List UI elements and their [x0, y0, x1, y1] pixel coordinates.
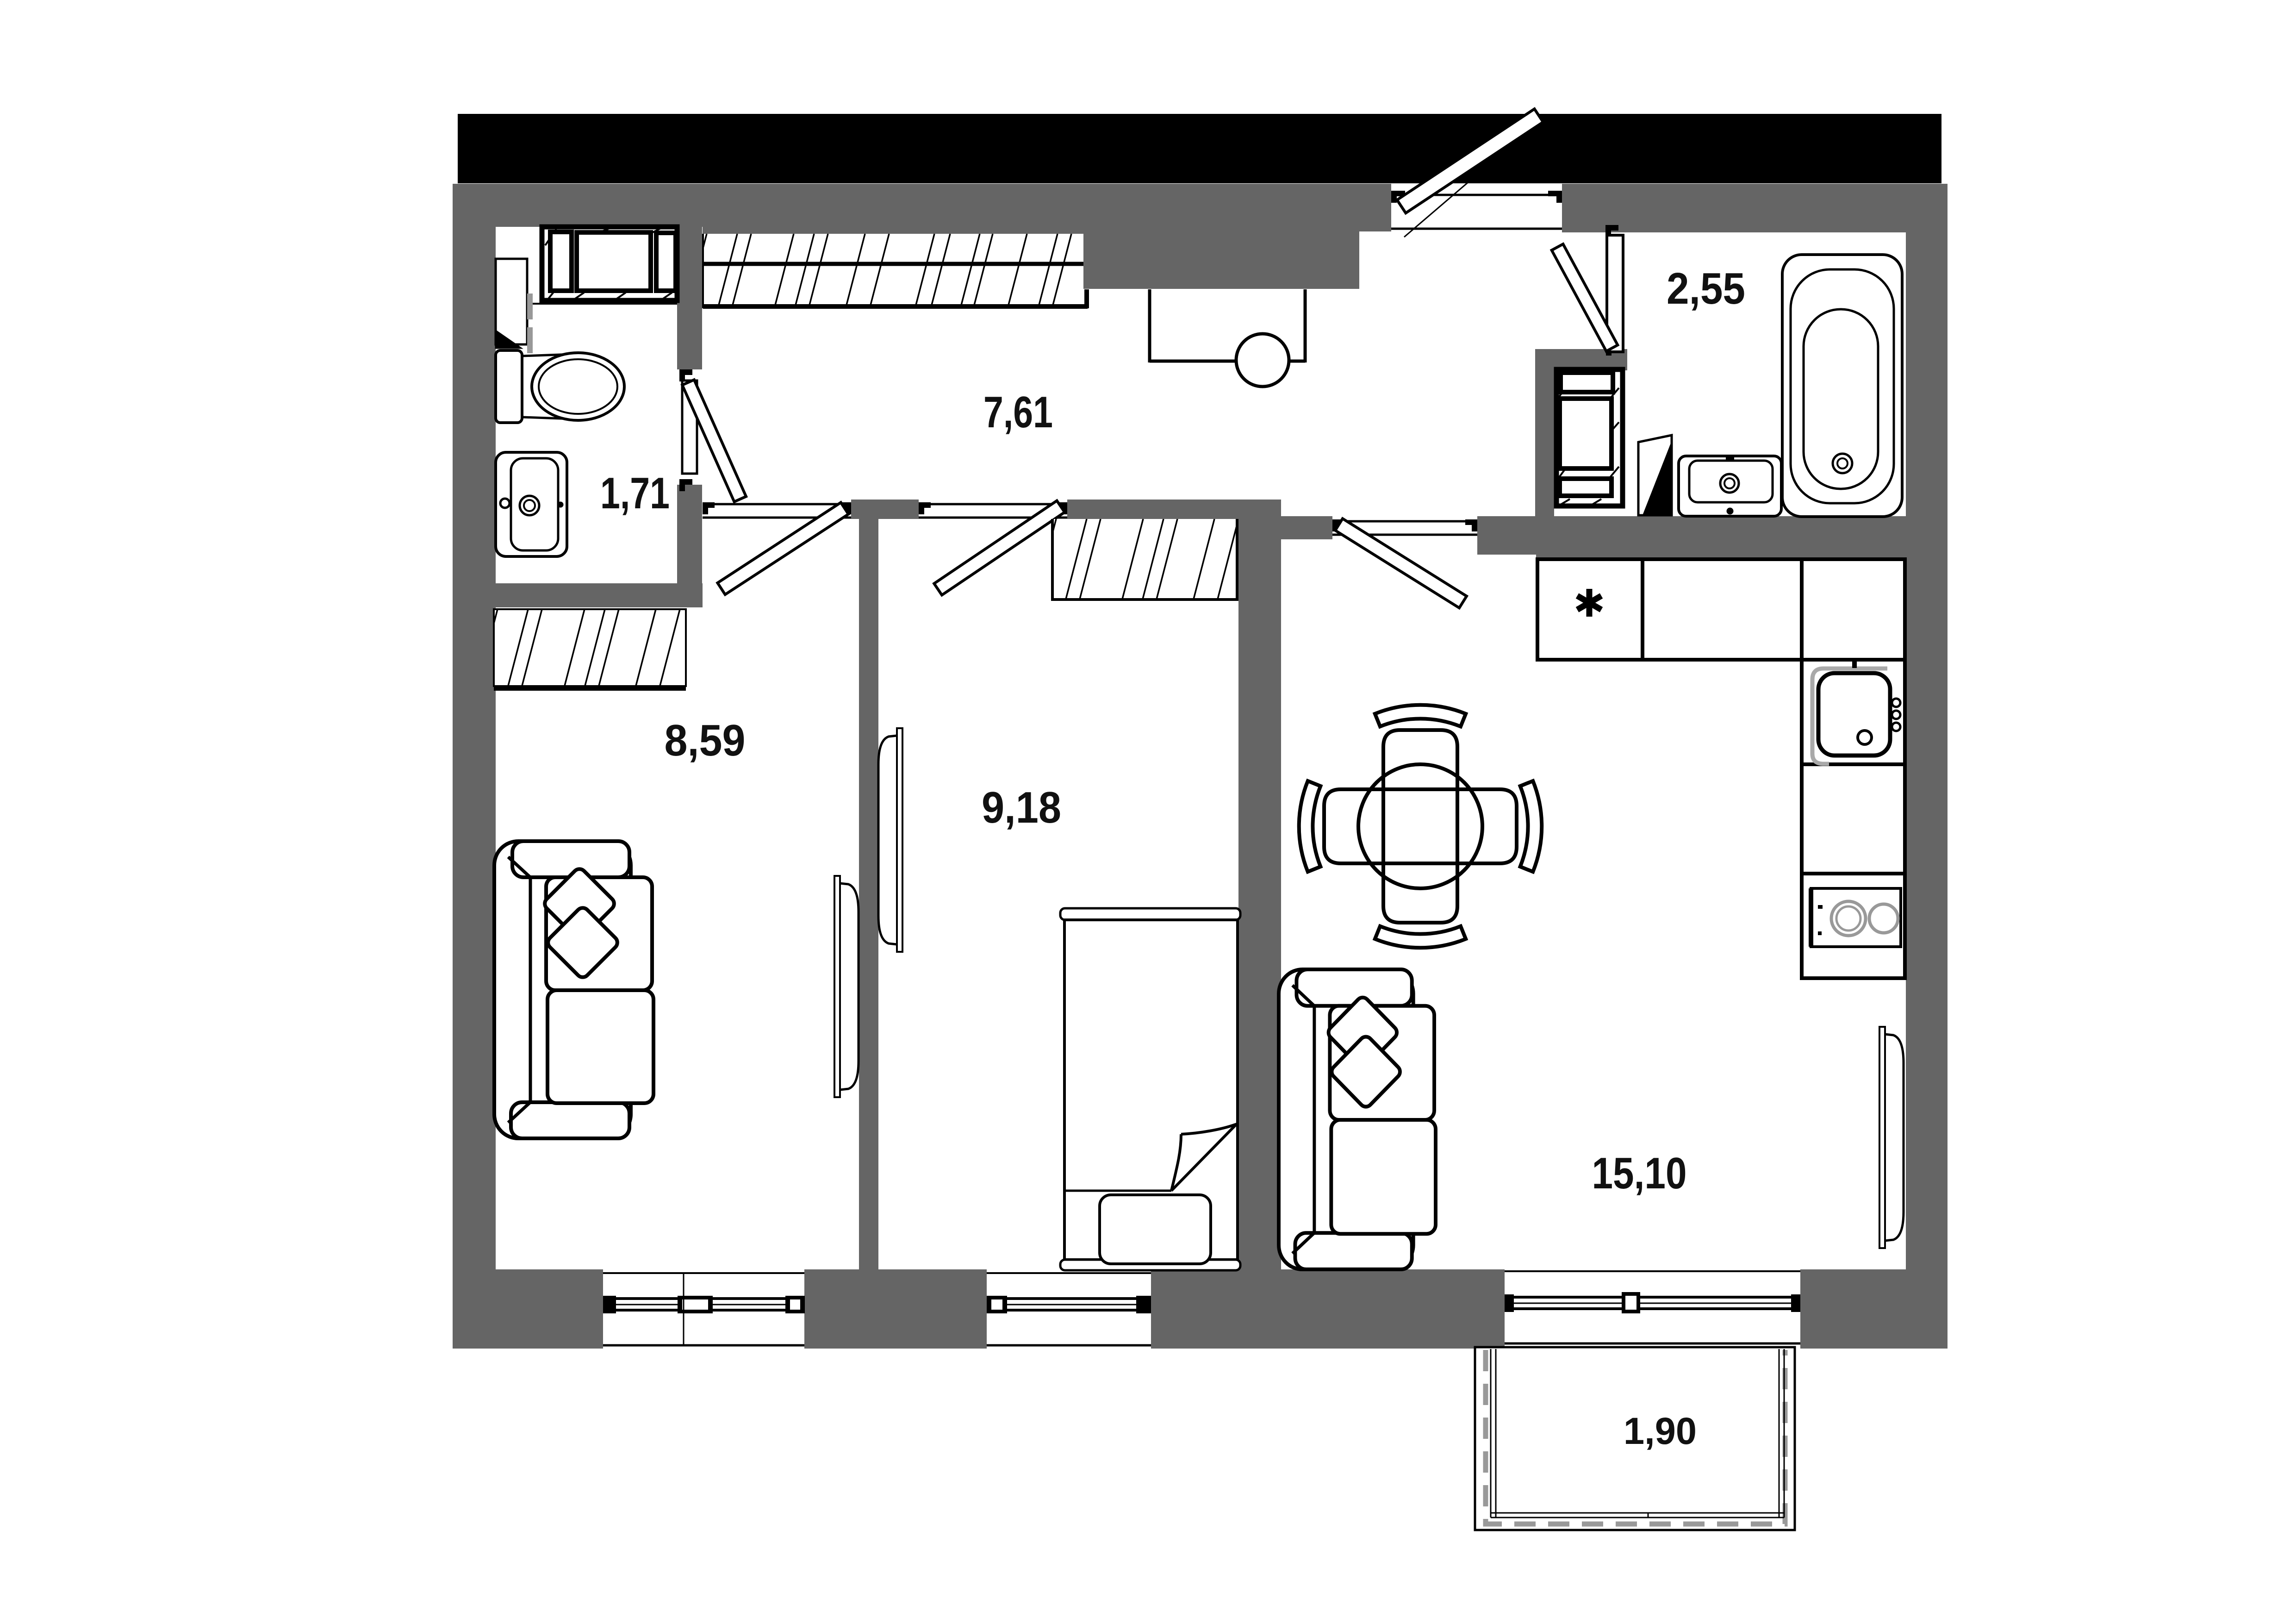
svg-text:9,18: 9,18 [982, 783, 1061, 832]
svg-text:15,10: 15,10 [1592, 1149, 1687, 1198]
svg-text:1,71: 1,71 [600, 468, 670, 518]
svg-text:2,55: 2,55 [1667, 264, 1745, 313]
svg-text:7,61: 7,61 [983, 387, 1053, 437]
svg-text:8,59: 8,59 [665, 716, 746, 765]
svg-text:1,90: 1,90 [1624, 1410, 1697, 1452]
